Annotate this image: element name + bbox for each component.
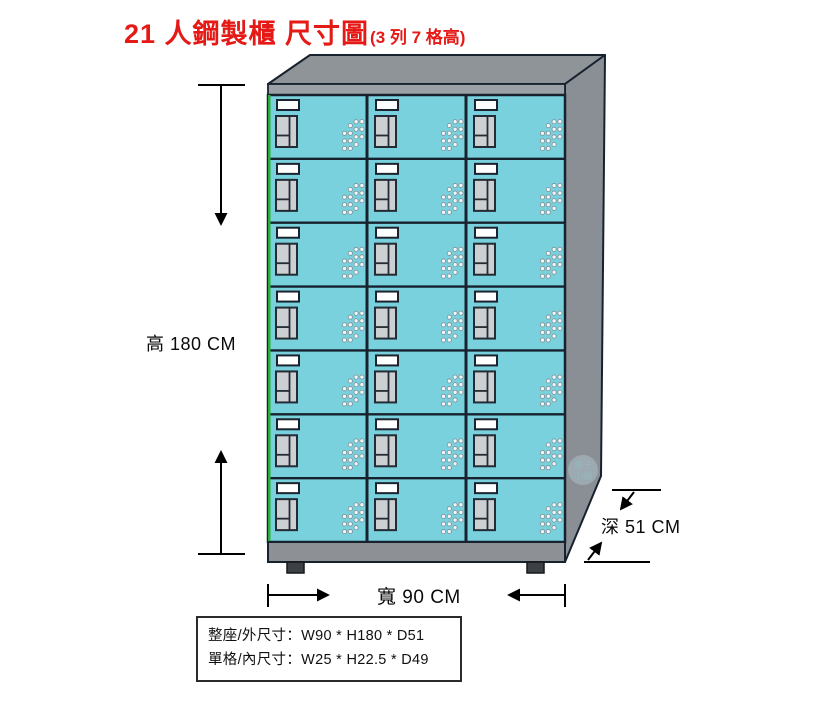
label-plate <box>376 483 398 493</box>
width-dimension-label: 寬 90 CM <box>377 582 461 609</box>
label-plate <box>475 164 497 174</box>
label-plate <box>277 164 299 174</box>
lock-handle <box>276 499 297 530</box>
lock-handle <box>474 116 495 147</box>
locker-dimension-diagram: 21 人鋼製櫃 尺寸圖 (3 列 7 格高) 格子 小舖 <box>0 0 824 720</box>
lock-handle <box>375 308 396 339</box>
label-plate <box>475 228 497 238</box>
lock-handle <box>276 371 297 402</box>
lock-handle <box>276 244 297 275</box>
label-plate <box>475 483 497 493</box>
label-plate <box>475 355 497 365</box>
watermark-line2: 小舖 <box>574 470 592 481</box>
cabinet: 格子 小舖 <box>268 55 605 573</box>
height-dimension-label: 高 180 CM <box>146 330 236 356</box>
lock-handle <box>474 371 495 402</box>
cabinet-diagram: 格子 小舖 <box>0 0 824 720</box>
label-plate <box>376 292 398 302</box>
lock-handle <box>474 435 495 466</box>
label-plate <box>277 228 299 238</box>
label-plate <box>475 100 497 110</box>
lock-handle <box>276 116 297 147</box>
height-dimension <box>198 85 245 554</box>
lock-handle <box>276 435 297 466</box>
lock-handle <box>276 308 297 339</box>
depth-arrow-up <box>588 543 601 560</box>
label-plate <box>376 419 398 429</box>
label-plate <box>475 419 497 429</box>
lock-handle <box>375 116 396 147</box>
watermark-line1: 格子 <box>574 459 592 470</box>
lock-handle <box>474 244 495 275</box>
label-plate <box>376 228 398 238</box>
locker-grid-background <box>268 95 565 542</box>
spec-line-cell: 單格/內尺寸：W25 * H22.5 * D49 <box>208 649 460 673</box>
depth-dimension-label: 深 51 CM <box>601 513 681 539</box>
lock-handle <box>375 435 396 466</box>
label-plate <box>376 355 398 365</box>
label-plate <box>277 292 299 302</box>
label-plate <box>277 355 299 365</box>
label-plate <box>475 292 497 302</box>
cabinet-side-panel <box>565 55 605 562</box>
spec-box: 整座/外尺寸：W90 * H180 * D51 單格/內尺寸：W25 * H22… <box>196 616 462 682</box>
cabinet-header-strip <box>268 84 565 95</box>
cabinet-foot-right <box>527 562 544 573</box>
label-plate <box>376 164 398 174</box>
spec-line-overall: 整座/外尺寸：W90 * H180 * D51 <box>208 625 460 649</box>
cabinet-base <box>268 542 565 562</box>
lock-handle <box>375 499 396 530</box>
lock-handle <box>375 244 396 275</box>
lock-handle <box>375 180 396 211</box>
lock-handle <box>474 499 495 530</box>
label-plate <box>277 100 299 110</box>
cabinet-top-face <box>268 55 605 84</box>
watermark: 格子 小舖 <box>568 455 598 485</box>
lock-handle <box>375 371 396 402</box>
label-plate <box>277 419 299 429</box>
label-plate <box>376 100 398 110</box>
lock-handle <box>276 180 297 211</box>
cabinet-foot-left <box>287 562 304 573</box>
lock-handle <box>474 308 495 339</box>
lock-handle <box>474 180 495 211</box>
depth-arrow-down <box>621 492 634 509</box>
label-plate <box>277 483 299 493</box>
